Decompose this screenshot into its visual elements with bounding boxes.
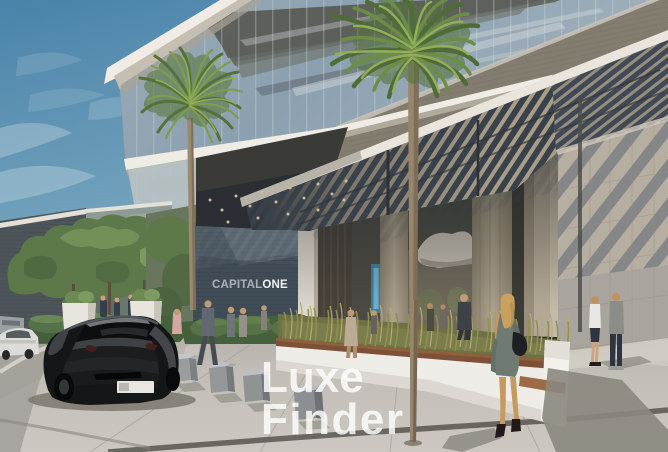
- svg-text:Finder: Finder: [261, 395, 404, 444]
- svg-text:CAPITALONE: CAPITALONE: [212, 279, 288, 291]
